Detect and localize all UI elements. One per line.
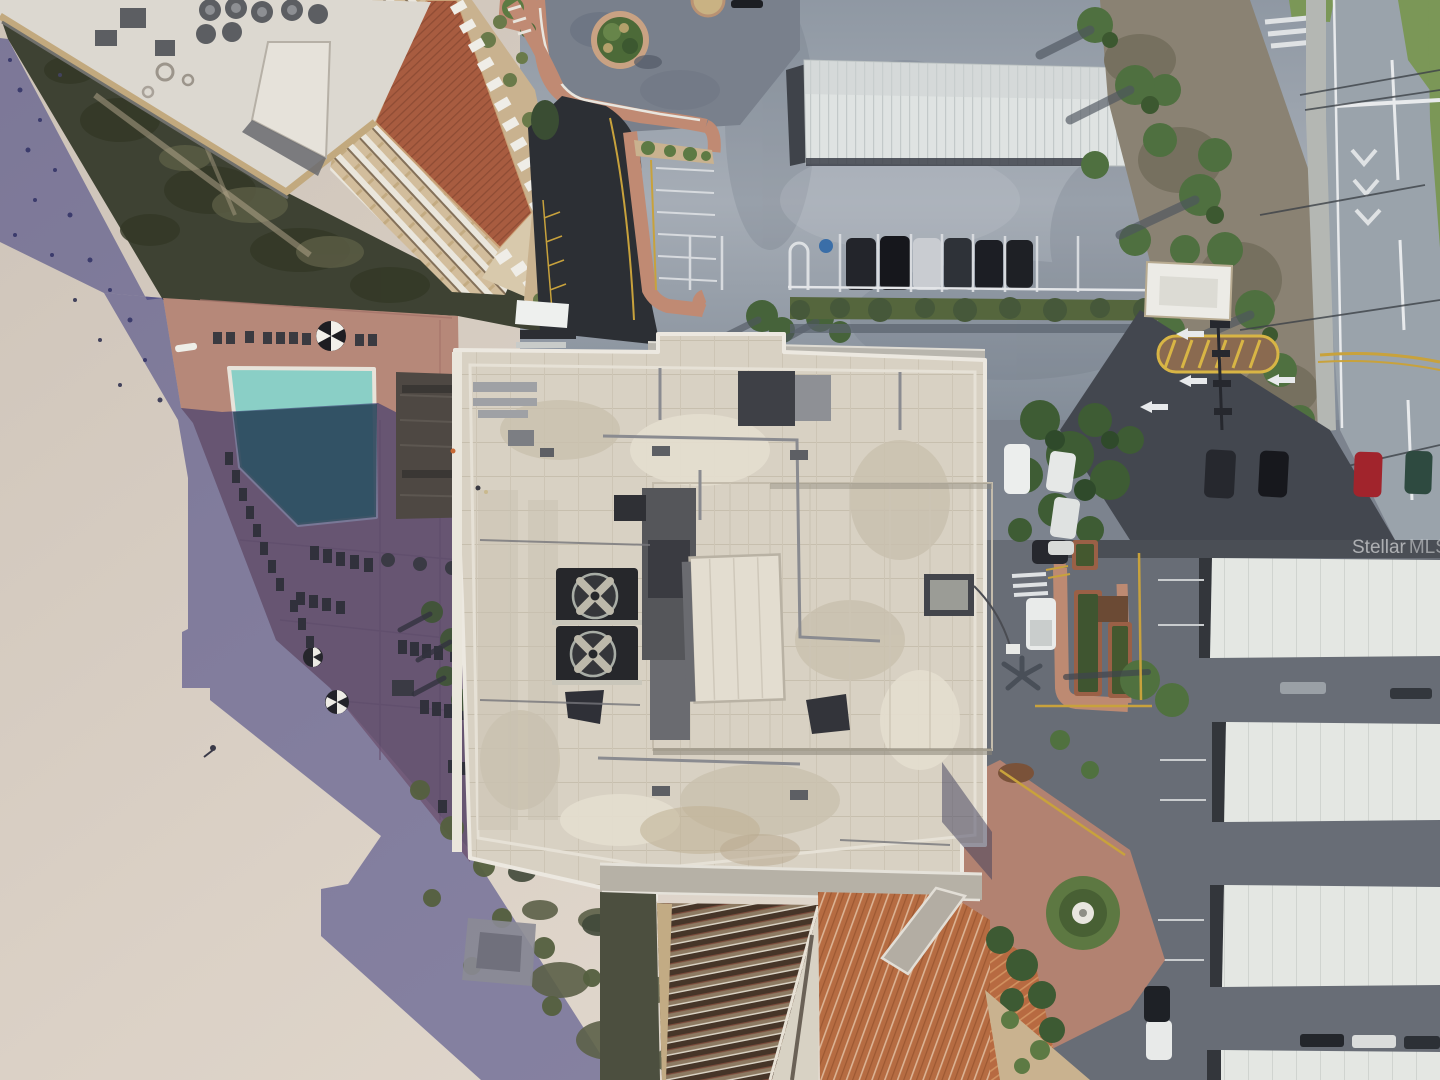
svg-text:StellarMLS: StellarMLS: [1352, 537, 1440, 558]
